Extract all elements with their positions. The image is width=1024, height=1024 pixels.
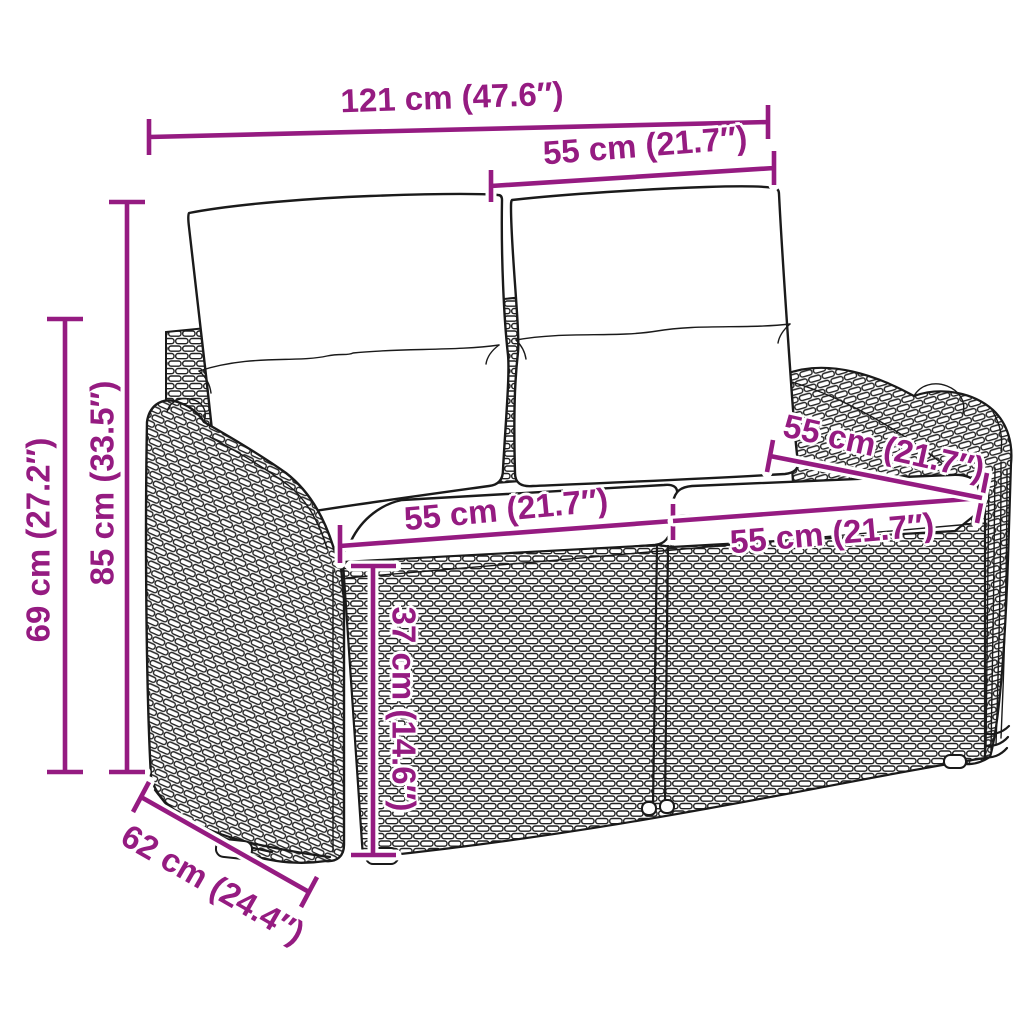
front-panel [343, 507, 985, 864]
foot-middle-right [660, 800, 674, 813]
dim-label-total-width: 121 cm (47.6″) [340, 77, 564, 118]
dim-label-total-height: 85 cm (33.5″) [86, 381, 119, 586]
product-dimension-diagram: 121 cm (47.6″) 55 cm (21.7″) 85 cm (33.5… [0, 0, 1024, 1024]
dim-label-seat-height: 37 cm (14.6″) [388, 607, 421, 812]
foot-middle-left [642, 802, 656, 815]
dim-label-armrest-height: 69 cm (27.2″) [22, 438, 55, 643]
foot-front-right [944, 755, 966, 768]
back-cushion-right [511, 186, 798, 486]
